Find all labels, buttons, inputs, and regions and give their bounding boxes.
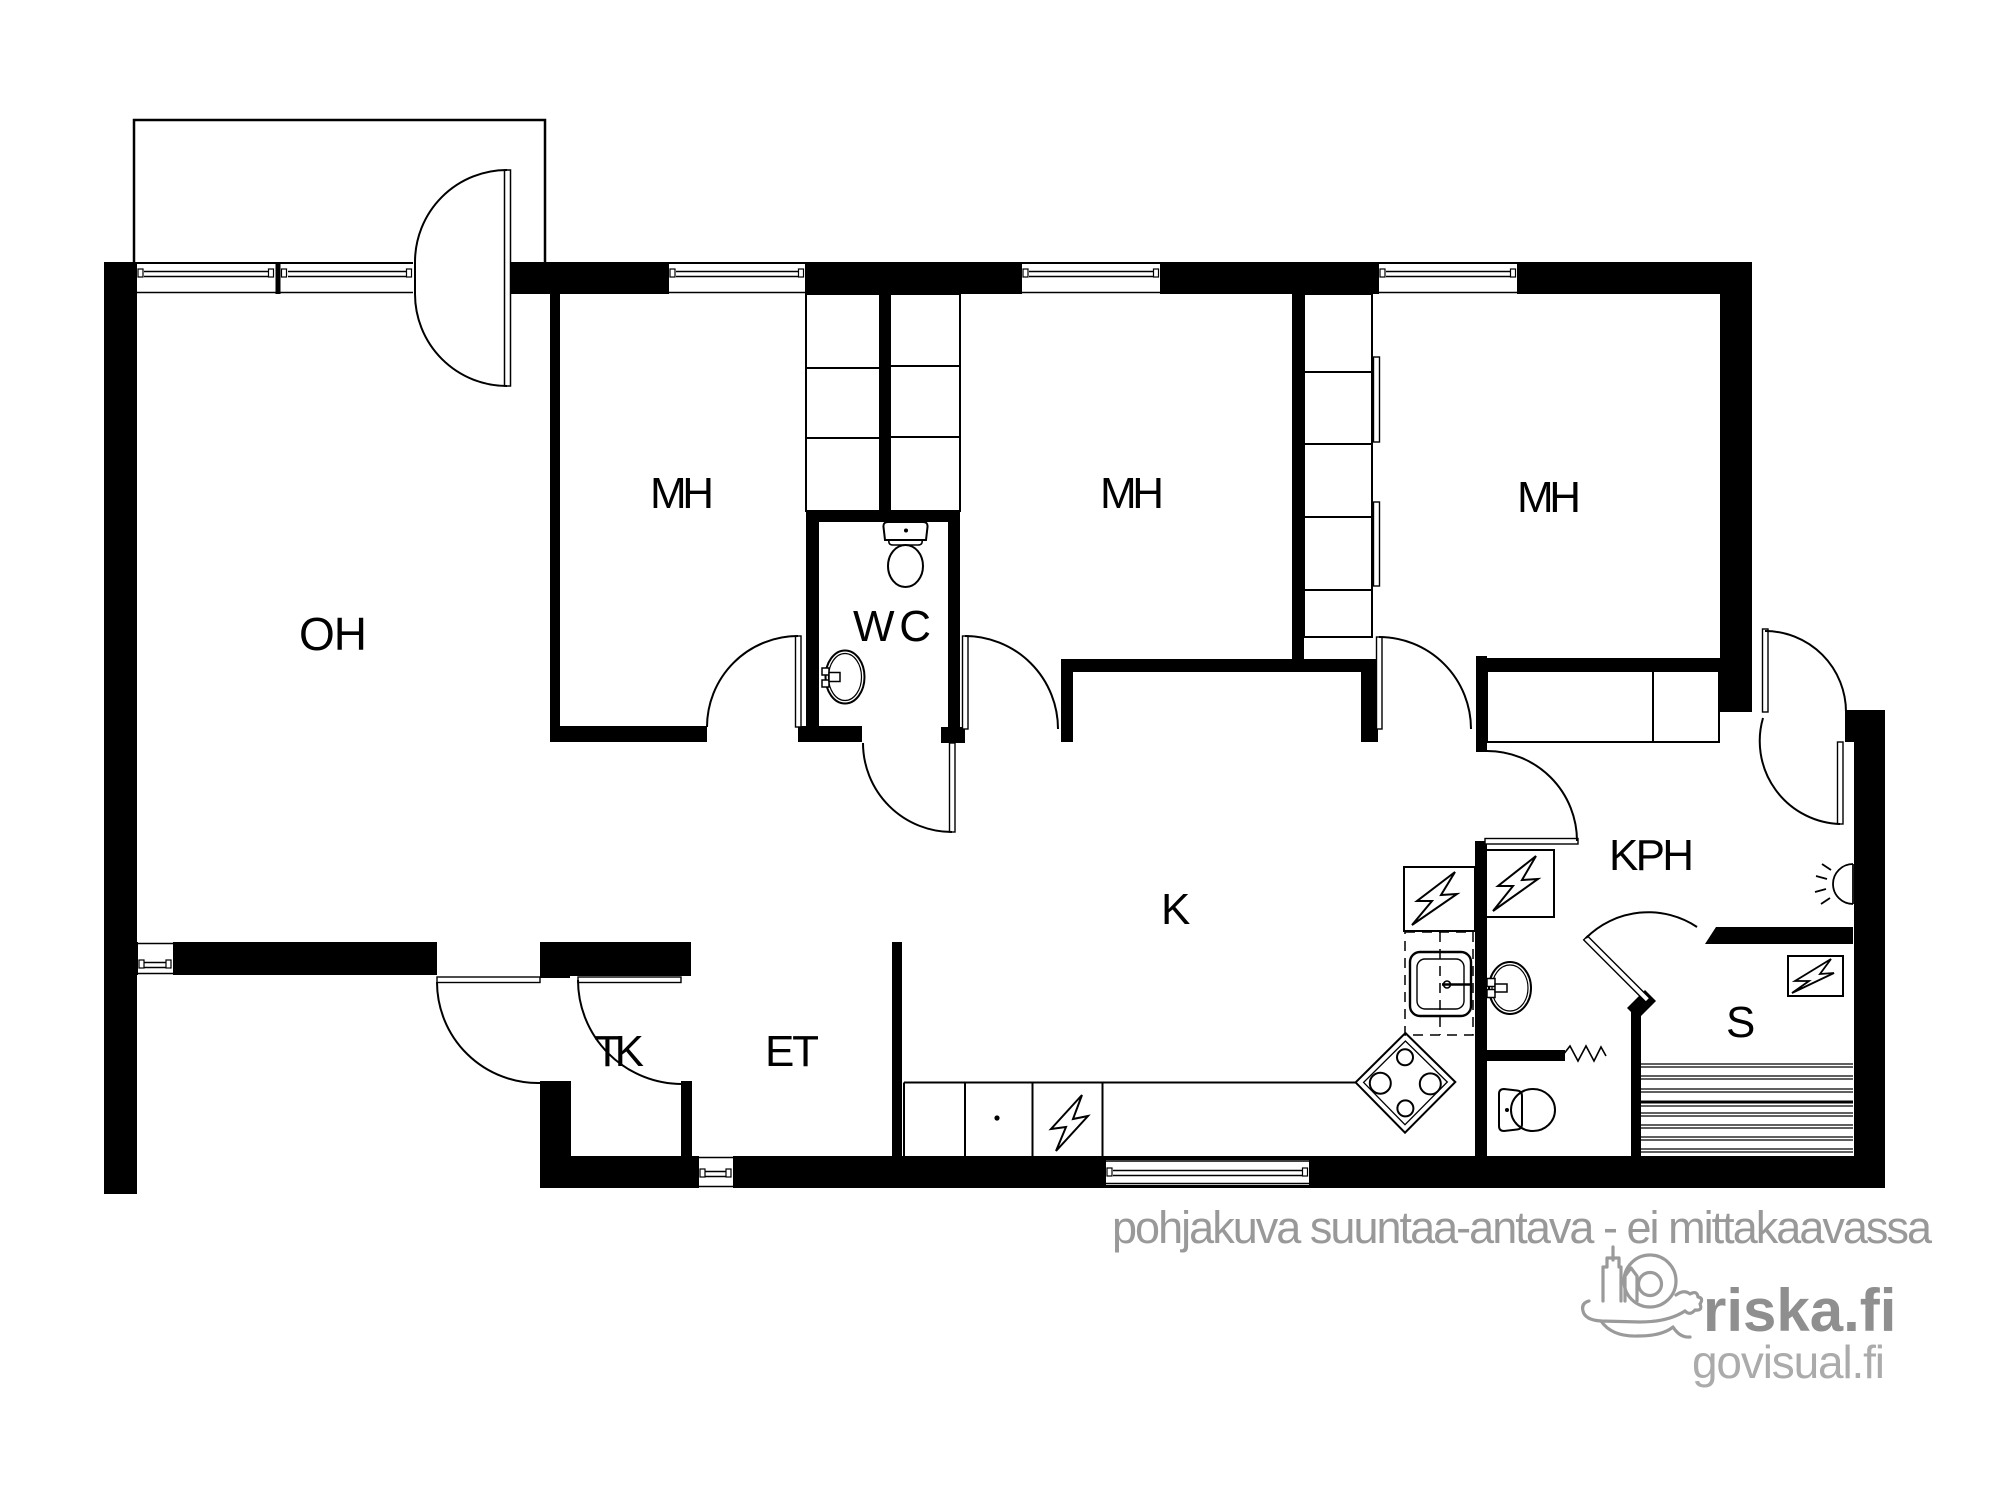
svg-text:S: S [1726, 998, 1755, 1047]
svg-text:MH: MH [1517, 473, 1581, 522]
svg-text:TK: TK [594, 1027, 644, 1076]
svg-text:KPH: KPH [1609, 831, 1694, 880]
svg-text:pohjakuva suuntaa-antava - ei: pohjakuva suuntaa-antava - ei mittakaava… [1112, 1202, 1933, 1253]
svg-text:OH: OH [299, 608, 367, 660]
svg-text:WC: WC [853, 602, 931, 651]
svg-text:K: K [1161, 885, 1190, 934]
svg-text:ET: ET [765, 1027, 819, 1076]
svg-text:MH: MH [650, 469, 714, 518]
svg-text:govisual.fi: govisual.fi [1692, 1336, 1885, 1388]
svg-text:MH: MH [1100, 469, 1164, 518]
svg-text:riska.fi: riska.fi [1703, 1277, 1896, 1344]
